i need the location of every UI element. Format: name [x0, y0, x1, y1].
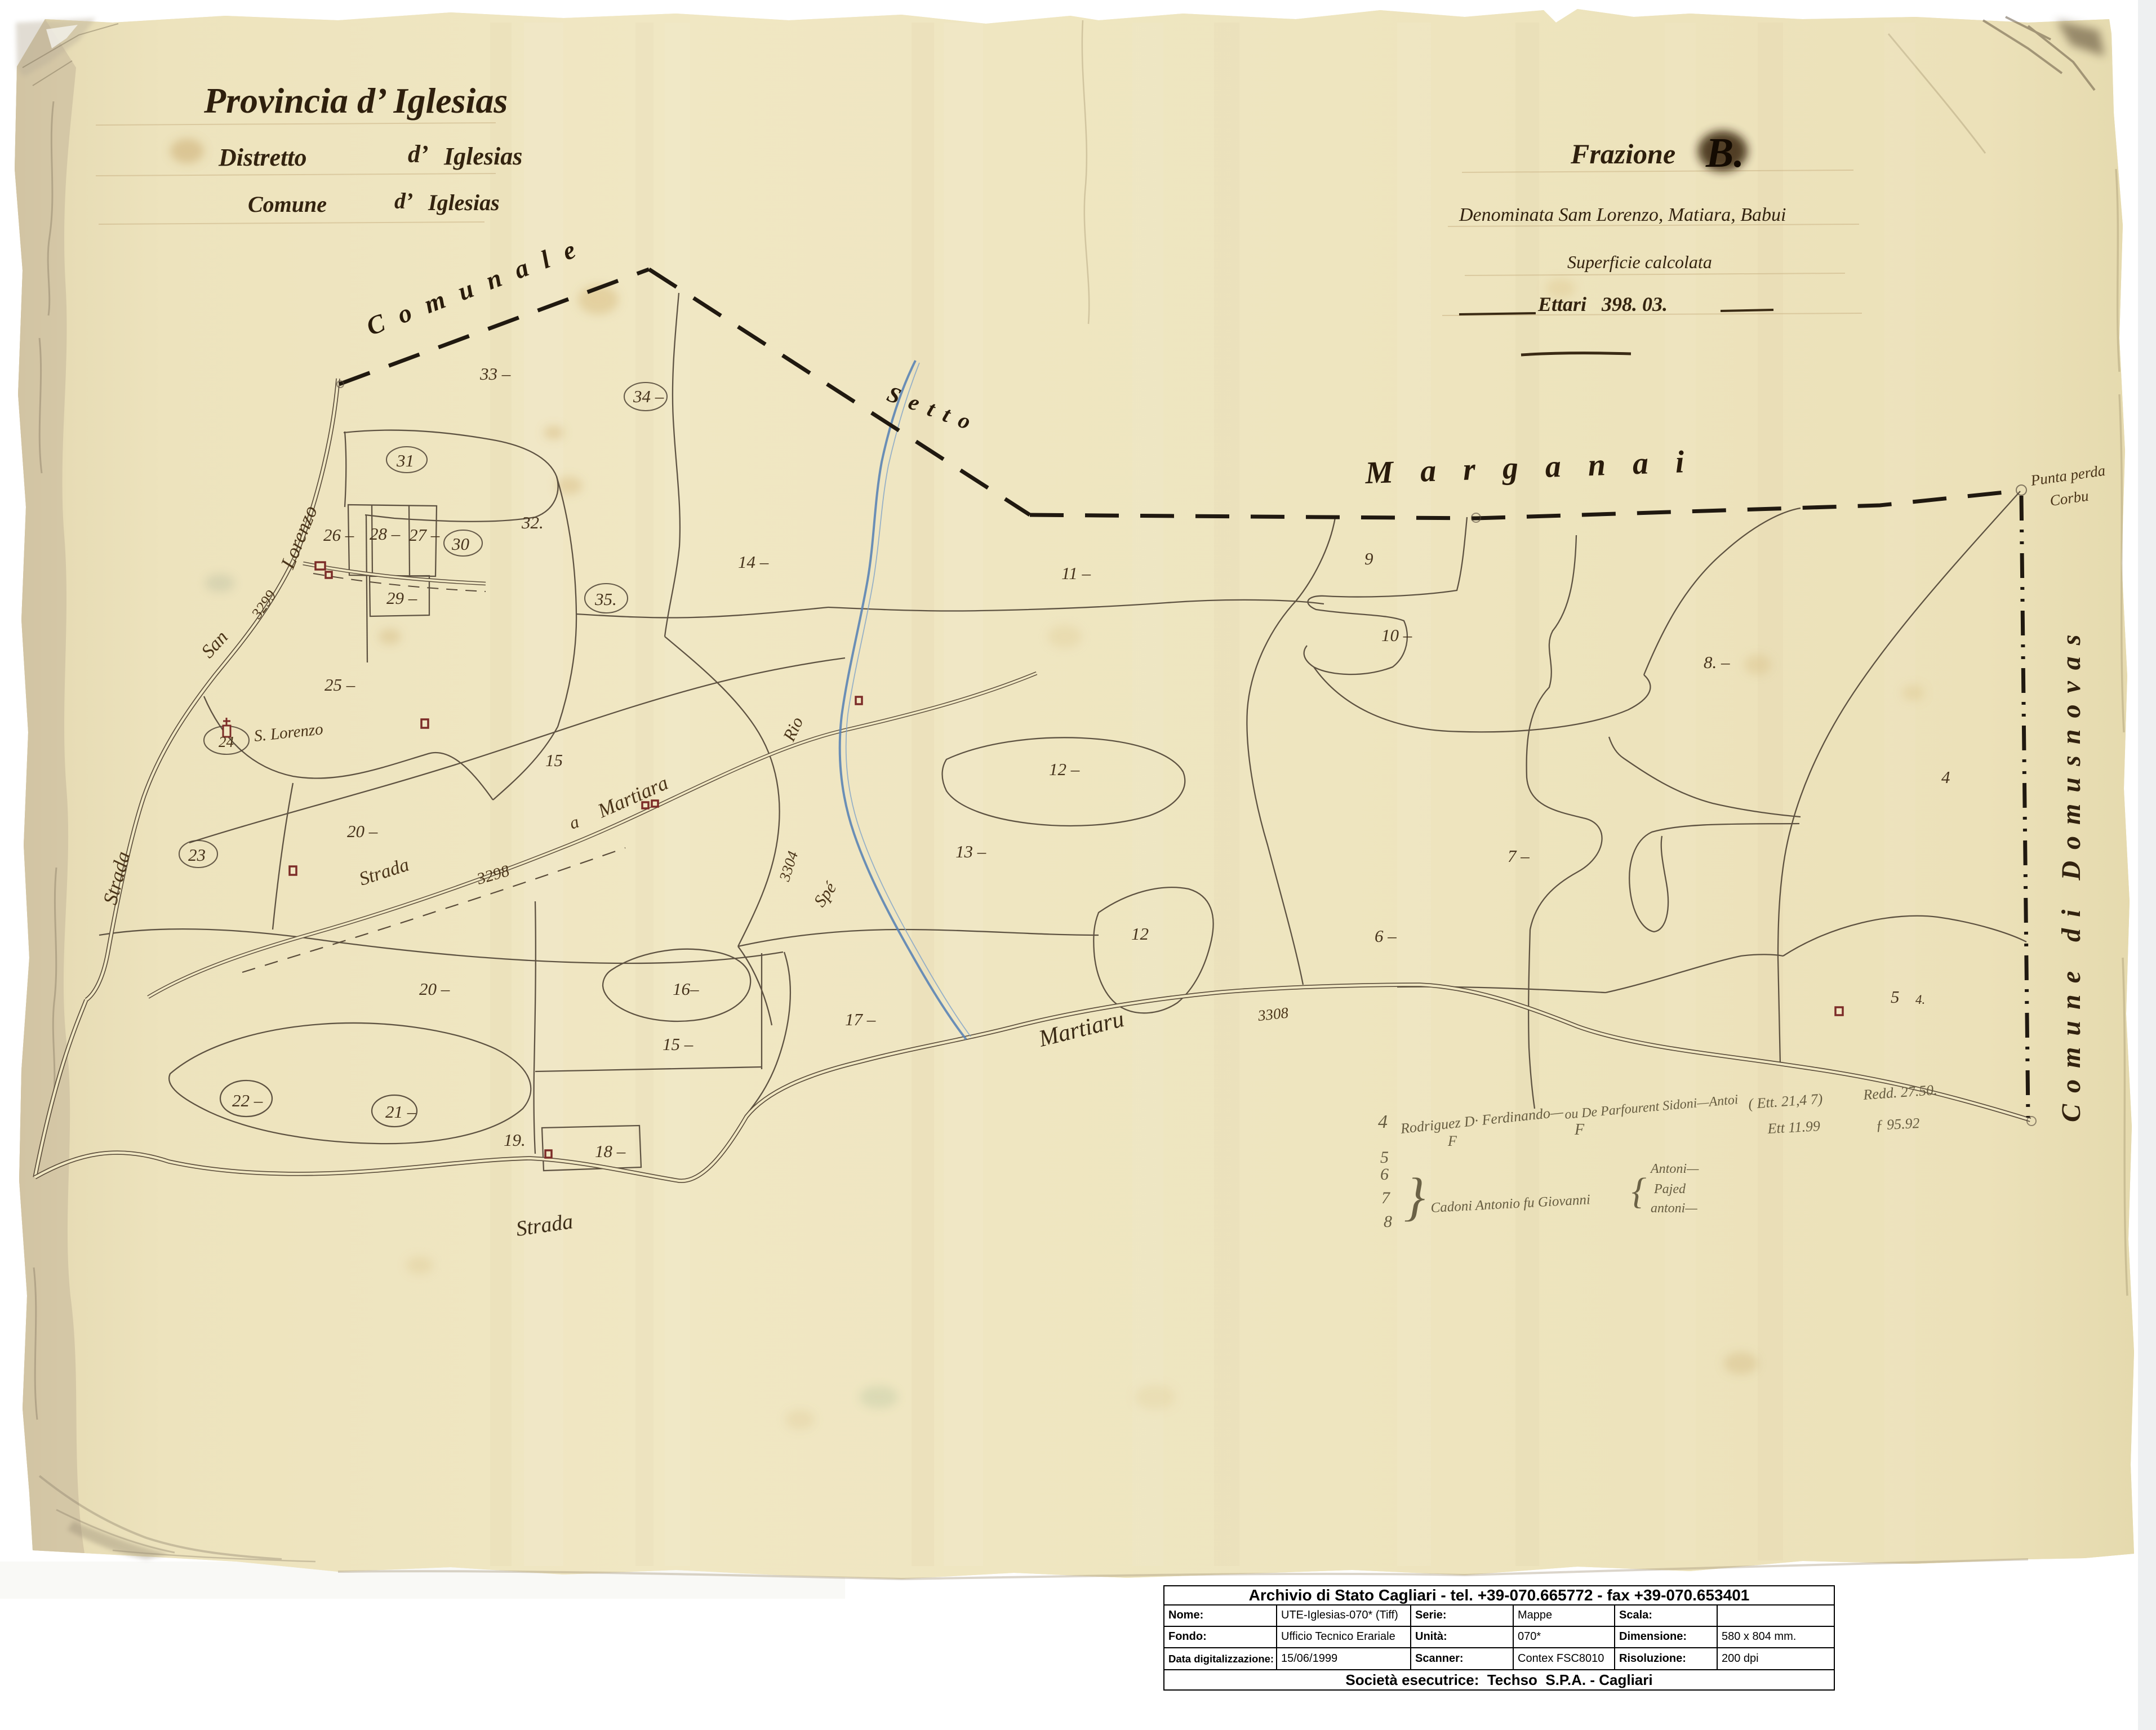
svg-text:11 –: 11 – — [1061, 563, 1091, 583]
svg-text:F: F — [1447, 1133, 1457, 1149]
svg-text:8. –: 8. – — [1704, 652, 1730, 672]
svg-text:15: 15 — [545, 750, 563, 770]
svg-text:20 –: 20 – — [419, 979, 450, 999]
svg-text:Ett 11.99: Ett 11.99 — [1767, 1118, 1821, 1137]
svg-text:12 –: 12 – — [1049, 759, 1080, 779]
svg-text:29 –: 29 – — [386, 588, 417, 608]
svg-text:Pajed: Pajed — [1653, 1182, 1686, 1197]
svg-text:21 –: 21 – — [385, 1102, 416, 1122]
svg-text:19.: 19. — [504, 1130, 526, 1150]
svg-text:28 –: 28 – — [370, 524, 401, 544]
svg-text:6: 6 — [1380, 1165, 1389, 1184]
svg-text:7: 7 — [1381, 1189, 1391, 1207]
svg-text:Provincia d’ Iglesias: Provincia d’ Iglesias — [203, 81, 508, 121]
svg-text:d’: d’ — [408, 140, 429, 168]
svg-text:32.: 32. — [521, 513, 544, 532]
svg-text:5: 5 — [1891, 987, 1900, 1007]
svg-text:23: 23 — [188, 845, 206, 865]
svg-text:Distretto: Distretto — [218, 144, 306, 171]
svg-text:{: { — [1632, 1171, 1646, 1212]
svg-text:18 –: 18 – — [595, 1141, 626, 1161]
svg-text:F: F — [1574, 1121, 1585, 1138]
svg-text:4: 4 — [1941, 767, 1950, 787]
svg-text:26 –: 26 – — [323, 525, 354, 545]
svg-text:Comune di Domusnovas: Comune di Domusnovas — [2056, 624, 2086, 1122]
svg-text:14 –: 14 – — [738, 552, 769, 572]
svg-text:d’: d’ — [394, 188, 413, 214]
svg-text:Iglesias: Iglesias — [428, 190, 500, 215]
svg-text:Frazione: Frazione — [1570, 138, 1675, 170]
svg-text:17 –: 17 – — [845, 1009, 876, 1029]
svg-text:24: 24 — [219, 733, 234, 750]
svg-text:16–: 16– — [673, 979, 699, 999]
svg-text:B.: B. — [1705, 130, 1744, 176]
svg-text:ƒ 95.92: ƒ 95.92 — [1875, 1115, 1920, 1133]
svg-text:Denominata Sam Lorenzo, Matiar: Denominata Sam Lorenzo, Matiara, Babui — [1459, 204, 1786, 225]
svg-text:7 –: 7 – — [1508, 846, 1530, 866]
svg-text:22 –: 22 – — [232, 1091, 263, 1110]
svg-text:12: 12 — [1131, 924, 1149, 944]
svg-text:20 –: 20 – — [347, 821, 378, 841]
svg-text:antoni—: antoni— — [1651, 1201, 1697, 1216]
svg-text:34 –: 34 – — [633, 386, 664, 406]
svg-text:}: } — [1404, 1168, 1425, 1226]
svg-text:13 –: 13 – — [955, 842, 986, 861]
svg-text:5: 5 — [1380, 1148, 1389, 1167]
svg-text:Ettari 398. 03.: Ettari 398. 03. — [1537, 293, 1668, 315]
svg-text:3308: 3308 — [1256, 1004, 1289, 1024]
svg-text:9: 9 — [1364, 549, 1373, 568]
svg-text:31: 31 — [396, 451, 414, 470]
svg-text:30: 30 — [451, 534, 470, 554]
svg-text:4: 4 — [1378, 1111, 1388, 1132]
svg-text:Iglesias: Iglesias — [443, 143, 522, 170]
svg-text:35.: 35. — [594, 589, 617, 609]
svg-text:10 –: 10 – — [1381, 625, 1412, 645]
svg-text:4.: 4. — [1915, 993, 1925, 1007]
svg-text:27 –: 27 – — [409, 525, 440, 545]
svg-text:Comune: Comune — [248, 192, 327, 217]
svg-text:Antoni—: Antoni— — [1650, 1162, 1699, 1176]
svg-text:15 –: 15 – — [663, 1034, 694, 1054]
svg-text:8: 8 — [1384, 1212, 1392, 1231]
svg-text:6 –: 6 – — [1375, 926, 1397, 946]
svg-text:25 –: 25 – — [324, 675, 355, 695]
svg-text:33 –: 33 – — [479, 364, 511, 384]
svg-text:Superficie calcolata: Superficie calcolata — [1567, 252, 1712, 272]
